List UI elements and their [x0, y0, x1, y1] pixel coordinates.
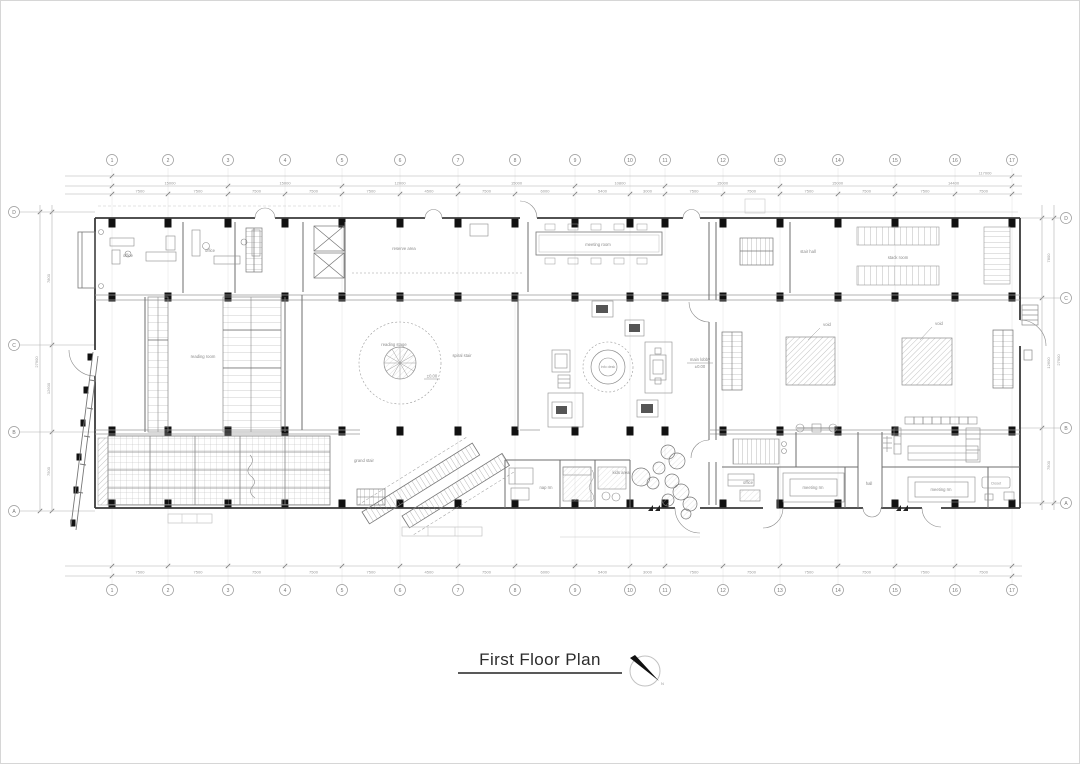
reserve-room — [352, 224, 522, 273]
grid-bubble-label: 14 — [835, 158, 841, 164]
dim-text: 7500 — [747, 189, 757, 194]
room-label: office — [205, 248, 216, 253]
grid-bubble-label: 12 — [720, 158, 726, 164]
dim-text: 7500 — [747, 570, 757, 575]
column — [512, 219, 519, 228]
grid-bubble-label: 5 — [341, 158, 344, 164]
column — [165, 219, 172, 228]
grid-bubble-label: 2 — [167, 158, 170, 164]
dim-text: 7800 — [1046, 253, 1051, 263]
room-label: reserve area — [392, 246, 416, 251]
room-label: office — [743, 480, 754, 485]
dim-text: 7500 — [136, 570, 146, 575]
room-label: meeting room — [585, 242, 611, 247]
floor-plan-sheet: 7500750075007500750045007500600054003000… — [0, 0, 1080, 764]
void-label: void — [823, 322, 831, 327]
dim-text: 15000 — [164, 181, 176, 186]
dim-text: 7500 — [194, 570, 204, 575]
grid-bubble-label: 1 — [111, 588, 114, 594]
column — [892, 219, 899, 228]
grid-bubble-label: 17 — [1009, 158, 1015, 164]
dim-text: 7500 — [690, 189, 700, 194]
column — [952, 219, 959, 228]
grid-bubble-label: 8 — [514, 158, 517, 164]
column — [627, 219, 634, 228]
grid-bubble-label: 12 — [720, 588, 726, 594]
column — [572, 427, 579, 436]
grid-bubble-label: 13 — [777, 158, 783, 164]
grid-bubble-label: 11 — [662, 158, 667, 164]
dim-text: 7500 — [1046, 460, 1051, 470]
dim-text: 6000 — [541, 570, 551, 575]
grid-bubble-label: D — [1064, 216, 1068, 222]
grid-bubble-label: 8 — [514, 588, 517, 594]
dim-text: 7500 — [979, 189, 989, 194]
dim-text: 7500 — [482, 189, 492, 194]
grid-bubble-label: 14 — [835, 588, 841, 594]
room-label: reading room — [191, 354, 216, 359]
grid-bubble-label: 15 — [892, 158, 898, 164]
dim-text: 7500 — [252, 570, 262, 575]
dim-text: 7500 — [194, 189, 204, 194]
grid-bubble-label: 6 — [399, 588, 402, 594]
dim-text: 15000 — [832, 181, 844, 186]
terrace-grid — [98, 436, 330, 523]
grid-bubble-label: C — [1064, 296, 1068, 302]
column — [282, 219, 289, 228]
level-mark: ±0.00 — [695, 364, 706, 369]
dim-text: 7500 — [482, 570, 492, 575]
right-exterior-stair — [1022, 305, 1038, 360]
north-label: N — [661, 681, 664, 686]
dim-text: 7500 — [252, 189, 262, 194]
grid-bubble-label: 5 — [341, 588, 344, 594]
grand-stair — [357, 436, 514, 536]
grid-bubble-label: 11 — [662, 588, 667, 594]
grid-bubble-label: 10 — [627, 588, 633, 594]
column — [777, 219, 784, 228]
left-porch — [78, 232, 95, 288]
column — [225, 219, 232, 228]
north-arrow-icon: N — [630, 655, 664, 686]
grid-bubble-label: 7 — [457, 588, 460, 594]
dim-text: 7500 — [979, 570, 989, 575]
column — [109, 219, 116, 228]
dim-text: 7500 — [862, 189, 872, 194]
dim-text: 7500 — [309, 189, 319, 194]
grid-bubble-label: 4 — [284, 588, 287, 594]
grid-bubble-label: 7 — [457, 158, 460, 164]
room-label: reading stage — [381, 342, 407, 347]
dim-text: 4500 — [425, 570, 435, 575]
dim-text: 7500 — [921, 189, 931, 194]
shelf-walls — [148, 297, 281, 432]
room-label: meeting rm — [931, 487, 952, 492]
dim-text: 6000 — [541, 189, 551, 194]
dim-text: 5400 — [598, 570, 608, 575]
grid-bubble-label: 17 — [1009, 588, 1015, 594]
annotation: main lobby — [690, 357, 711, 362]
column — [627, 427, 634, 436]
dim-text: 7500 — [805, 570, 815, 575]
grid-bubble-label: 9 — [574, 158, 577, 164]
room-label: office — [123, 253, 134, 258]
room-label: nap rm — [539, 485, 553, 490]
room-label: info desk — [601, 365, 616, 369]
column — [572, 219, 579, 228]
grid-bubble-label: 16 — [952, 588, 958, 594]
grid-bubble-label: 6 — [399, 158, 402, 164]
room-label: stair hall — [800, 249, 816, 254]
grid-bubble-label: D — [12, 210, 16, 216]
dim-text: 15000 — [717, 181, 729, 186]
room-label: stack room — [888, 255, 909, 260]
dim-text: 12600 — [46, 382, 51, 394]
level-mark: ±0.00 — [427, 374, 438, 379]
dim-text: 7500 — [46, 466, 51, 476]
column — [397, 219, 404, 228]
dim-text: 4500 — [425, 189, 435, 194]
office-furniture — [99, 230, 261, 289]
grid-bubble-label: 10 — [627, 158, 633, 164]
floor-plan-drawing: 7500750075007500750045007500600054003000… — [0, 0, 1080, 764]
dim-text: 7500 — [136, 189, 146, 194]
stack-shelving — [857, 227, 1010, 285]
dim-text: 15000 — [279, 181, 291, 186]
column — [662, 219, 669, 228]
dim-text: 15000 — [511, 181, 523, 186]
column — [662, 427, 669, 436]
grid-bubble-label: C — [12, 343, 16, 349]
lobby — [548, 301, 672, 427]
column — [455, 427, 462, 436]
dim-text: 27900 — [1056, 354, 1061, 366]
dim-text: 7800 — [46, 273, 51, 283]
dim-text: 10800 — [614, 181, 626, 186]
column — [397, 427, 404, 436]
column — [835, 219, 842, 228]
column — [720, 219, 727, 228]
column — [455, 219, 462, 228]
sheet-title: First Floor Plan — [479, 650, 601, 669]
elevator-shafts — [314, 226, 344, 278]
grid-bubble-label: 2 — [167, 588, 170, 594]
right-wing-stair — [740, 238, 773, 265]
grid-bubble-label: 9 — [574, 588, 577, 594]
dim-text: 7500 — [690, 570, 700, 575]
dim-text: 12600 — [1046, 357, 1051, 369]
column — [1009, 219, 1016, 228]
grid-bubble-label: 16 — [952, 158, 958, 164]
dim-text: 7500 — [862, 570, 872, 575]
grid-bubble-label: 4 — [284, 158, 287, 164]
dim-text: 5400 — [598, 189, 608, 194]
dim-text: 27900 — [34, 356, 39, 368]
grid-bubble-label: 13 — [777, 588, 783, 594]
dim-text: 7500 — [921, 570, 931, 575]
right-hall — [722, 327, 1013, 390]
void-label: void — [935, 321, 943, 326]
core-stair — [246, 228, 262, 272]
closet-label: Closet — [991, 482, 1001, 486]
exterior-ramp — [71, 352, 98, 530]
room-label: kids area — [613, 470, 631, 475]
dim-text: 7500 — [309, 570, 319, 575]
dim-text: 3000 — [643, 189, 653, 194]
annotation: spiral stair — [452, 353, 472, 358]
column — [512, 427, 519, 436]
dim-text: 7500 — [805, 189, 815, 194]
grid-bubble-label: 15 — [892, 588, 898, 594]
dim-text: 7500 — [367, 189, 377, 194]
annotation: grand stair — [354, 458, 374, 463]
dim-text: 3000 — [643, 570, 653, 575]
dim-text: 117000 — [978, 171, 992, 176]
room-label: meeting rm — [803, 485, 824, 490]
dim-text: 14400 — [948, 181, 960, 186]
bottom-right-rooms — [728, 417, 1014, 511]
grid-bubble-label: 3 — [227, 588, 230, 594]
dim-text: 7500 — [367, 570, 377, 575]
nap-rooms — [509, 467, 626, 502]
dim-text: 12000 — [394, 181, 406, 186]
grid-bubble-label: 3 — [227, 158, 230, 164]
spiral-stair — [359, 322, 713, 404]
grid-bubble-label: 1 — [111, 158, 114, 164]
room-label: hall — [866, 481, 873, 486]
